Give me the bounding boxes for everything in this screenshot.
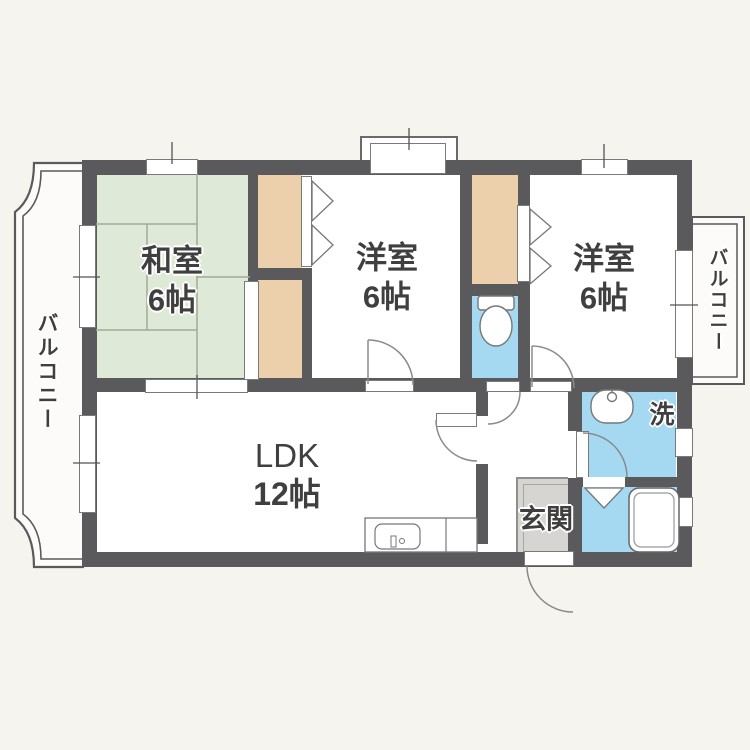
- door-toilet: [486, 381, 520, 392]
- window-washitsu-top: [146, 159, 198, 175]
- window-washitsu-left: [79, 225, 96, 328]
- window-bathroom: [675, 497, 693, 527]
- wall: [460, 174, 472, 392]
- wall: [302, 268, 312, 380]
- door-entrance: [524, 551, 574, 566]
- closet-door-upper: [301, 176, 312, 267]
- closet-lower-oshiire: [256, 280, 302, 380]
- wall: [476, 392, 488, 544]
- opening-ldk-hall: [476, 416, 488, 464]
- door-bedroom-right: [530, 381, 572, 392]
- opening-bathroom: [583, 477, 625, 487]
- bay-window: [370, 143, 446, 174]
- balcony-right-label: バルコニー: [704, 248, 731, 353]
- closet-upper: [256, 174, 302, 268]
- closet-right: [472, 174, 518, 284]
- door-washroom: [576, 431, 589, 478]
- sliding-door-oshiire: [244, 281, 259, 380]
- bathroom: [582, 487, 678, 553]
- laundry-label: 洗: [649, 395, 674, 431]
- ldk-size: 12帖: [253, 469, 321, 515]
- window-ldk-left: [79, 415, 96, 513]
- bedroom-center-size: 6帖: [363, 272, 411, 317]
- balcony-left-label: バルコニー: [31, 312, 61, 432]
- floorplan: 和室 6帖 洋室 6帖 洋室 6帖 LDK 12帖 玄関 洗 バルコニー バルコ…: [0, 0, 750, 750]
- closet-door-right: [517, 205, 530, 282]
- wall: [472, 284, 518, 296]
- window-washroom: [675, 428, 693, 457]
- bedroom-right-size: 6帖: [580, 273, 628, 318]
- entrance-label: 玄関: [519, 498, 573, 537]
- toilet-room: [472, 295, 518, 380]
- window-bedroom-right-side: [675, 250, 693, 358]
- wall: [82, 552, 692, 567]
- door-ldk-hall: [436, 413, 477, 427]
- window-bedroom-right-top: [581, 159, 628, 175]
- washitsu-size: 6帖: [148, 275, 196, 320]
- sliding-door-washitsu-ldk: [145, 379, 248, 393]
- door-bedroom-center: [365, 380, 414, 392]
